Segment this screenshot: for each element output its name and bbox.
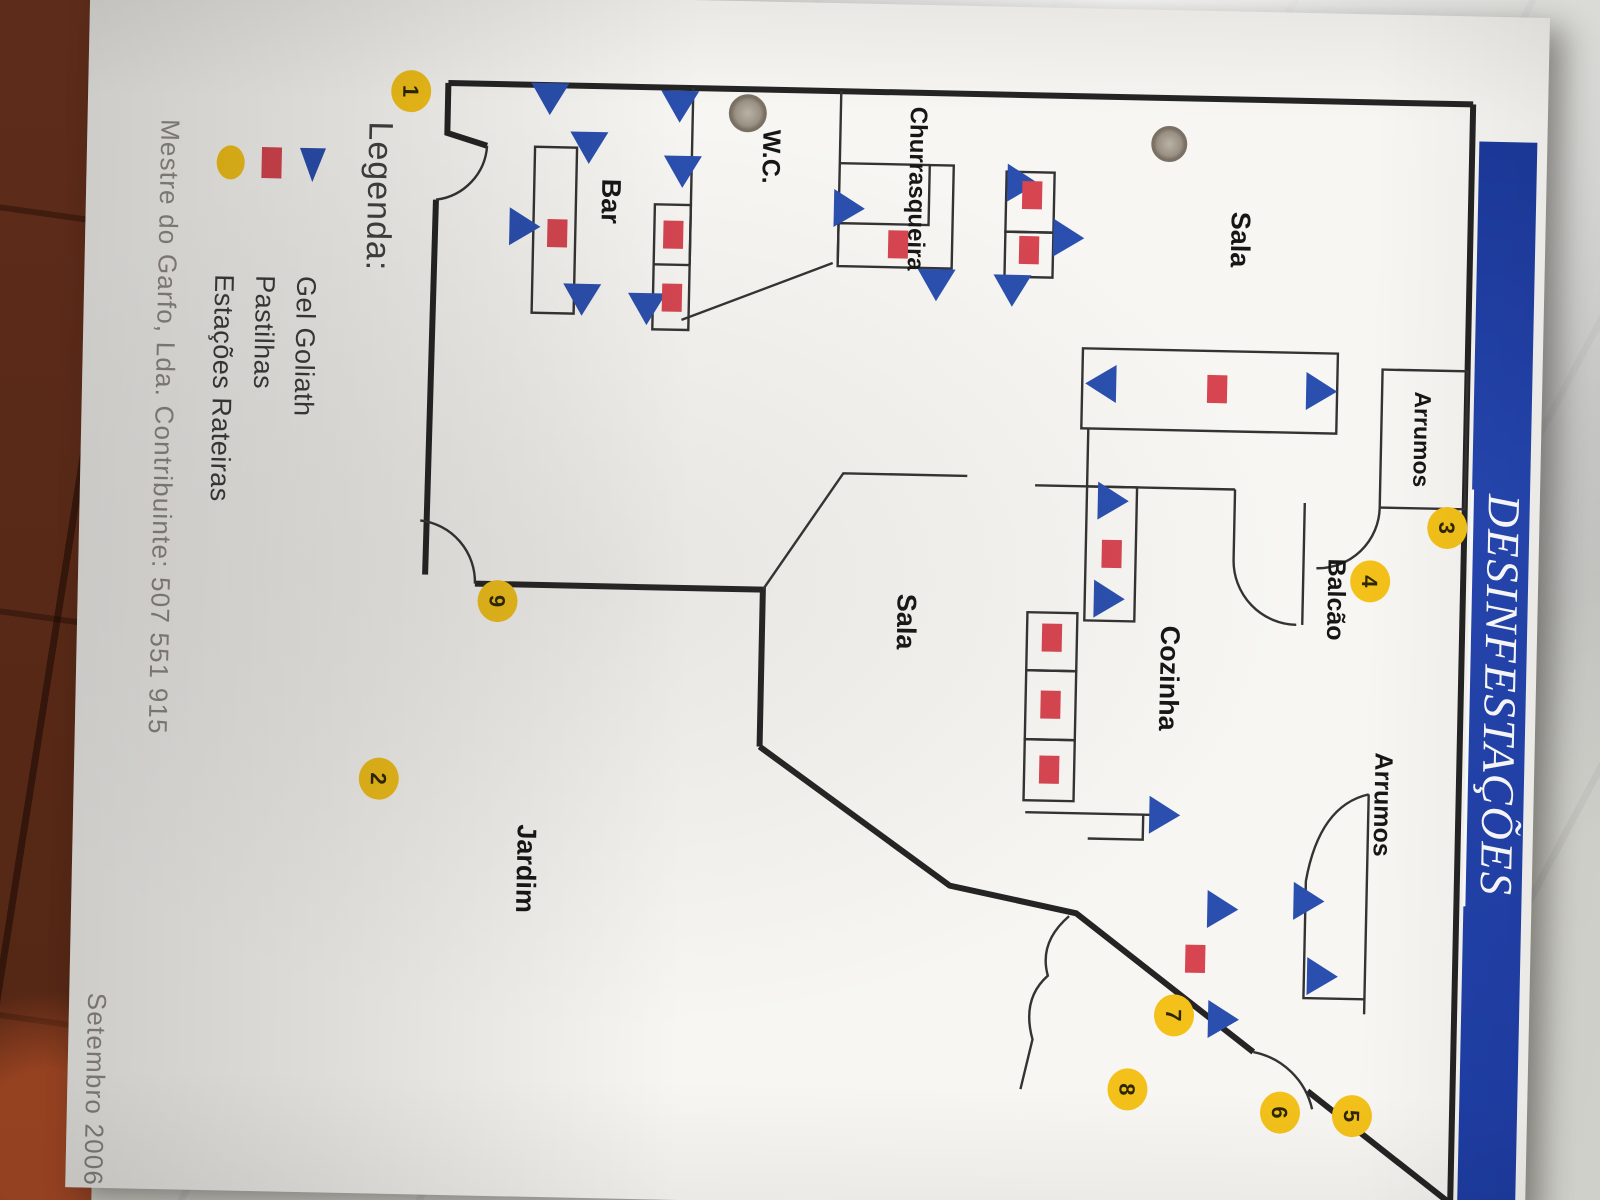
station-number: 1 [398,85,423,98]
estacao-rateira-marker-2: 2 [358,757,399,800]
pastilha-marker [1207,375,1228,403]
station-number: 9 [484,595,509,608]
room-label-balcao: Balcão [1321,558,1351,641]
room-label-jardim: Jardim [510,824,542,913]
room-label-arrumos-top: Arrumos [1408,391,1436,487]
station-number: 3 [1434,522,1459,535]
pastilha-marker [663,220,684,248]
punch-hole-top [1152,127,1187,162]
pastilha-marker [1019,236,1040,264]
gel-goliath-marker [1093,580,1125,619]
interior-walls [408,83,1473,1113]
room-label-sala-2: Sala [891,594,922,651]
gel-goliath-marker [917,269,956,302]
gel-goliath-marker [1208,1000,1240,1039]
station-number: 4 [1357,575,1382,589]
estacao-rateira-marker-1: 1 [391,70,432,113]
pastilha-marker [1039,755,1060,783]
gel-goliath-marker [1293,882,1325,921]
gel-goliath-marker [1053,219,1085,258]
legend-label: Pastilhas [247,275,280,390]
legend-label: Estações Rateiras [204,274,240,502]
station-number: 8 [1114,1083,1139,1096]
document-date: Setembro 2006 [77,992,112,1186]
station-number: 7 [1161,1009,1186,1022]
photo-scene: DESINFESTAÇÕES [0,0,1600,1200]
pastilha-marker [547,219,568,247]
pastilha-marker [1185,945,1206,973]
station-number: 6 [1267,1106,1292,1119]
gel-goliath-marker [1306,957,1338,996]
gel-goliath-marker [531,83,570,116]
gel-goliath-marker [833,189,865,228]
pastilha-marker [1042,623,1063,651]
estacao-rateira-marker-6: 6 [1260,1091,1301,1134]
pastilhas-square-icon [258,143,285,202]
pastilha-marker [662,283,683,311]
gel-goliath-triangle-icon [297,144,328,203]
room-label-wc: W.C. [756,129,785,184]
gel-goliath-marker [563,283,602,316]
gel-goliath-marker [1085,364,1117,403]
gel-goliath-marker [1306,372,1338,411]
legend-heading: Legenda: [353,121,400,505]
legend: Legenda: Gel Goliath Pastilhas Estações … [204,118,400,505]
gel-goliath-marker [627,293,666,326]
gel-goliath-marker [1207,890,1239,929]
legend-label: Gel Goliath [287,276,321,417]
pastilha-marker [1101,540,1122,568]
room-label-arrumos-right: Arrumos [1367,752,1397,857]
gel-goliath-marker [993,274,1032,307]
punch-hole-bottom [729,95,766,132]
gel-goliath-marker [663,155,702,188]
estacao-rateira-marker-4: 4 [1350,560,1391,603]
station-number: 5 [1339,1110,1364,1123]
gel-goliath-marker [1149,796,1181,835]
estacao-rateira-circle-icon [214,142,247,201]
room-labels: SalaArrumosBalcãoCozinhaSalaArrumosChurr… [510,99,1442,932]
pastilha-marker [1040,690,1061,718]
station-number: 2 [366,772,391,785]
estacao-rateira-marker-5: 5 [1332,1095,1373,1138]
pastilha-marker [1022,181,1043,209]
legend-row-gel: Gel Goliath [286,120,335,504]
room-label-sala-1: Sala [1225,211,1256,268]
room-label-cozinha: Cozinha [1153,625,1185,732]
room-label-bar: Bar [595,179,626,225]
room-label-churrasqueira: Churrasqueira [902,106,932,271]
document-paper: DESINFESTAÇÕES [65,0,1550,1200]
outer-walls [412,83,1473,1200]
estacao-rateira-marker-8: 8 [1107,1068,1148,1111]
gel-goliath-marker [509,207,541,246]
legend-row-estacoes: Estações Rateiras [204,118,253,502]
legend-row-pastilhas: Pastilhas [245,119,294,503]
